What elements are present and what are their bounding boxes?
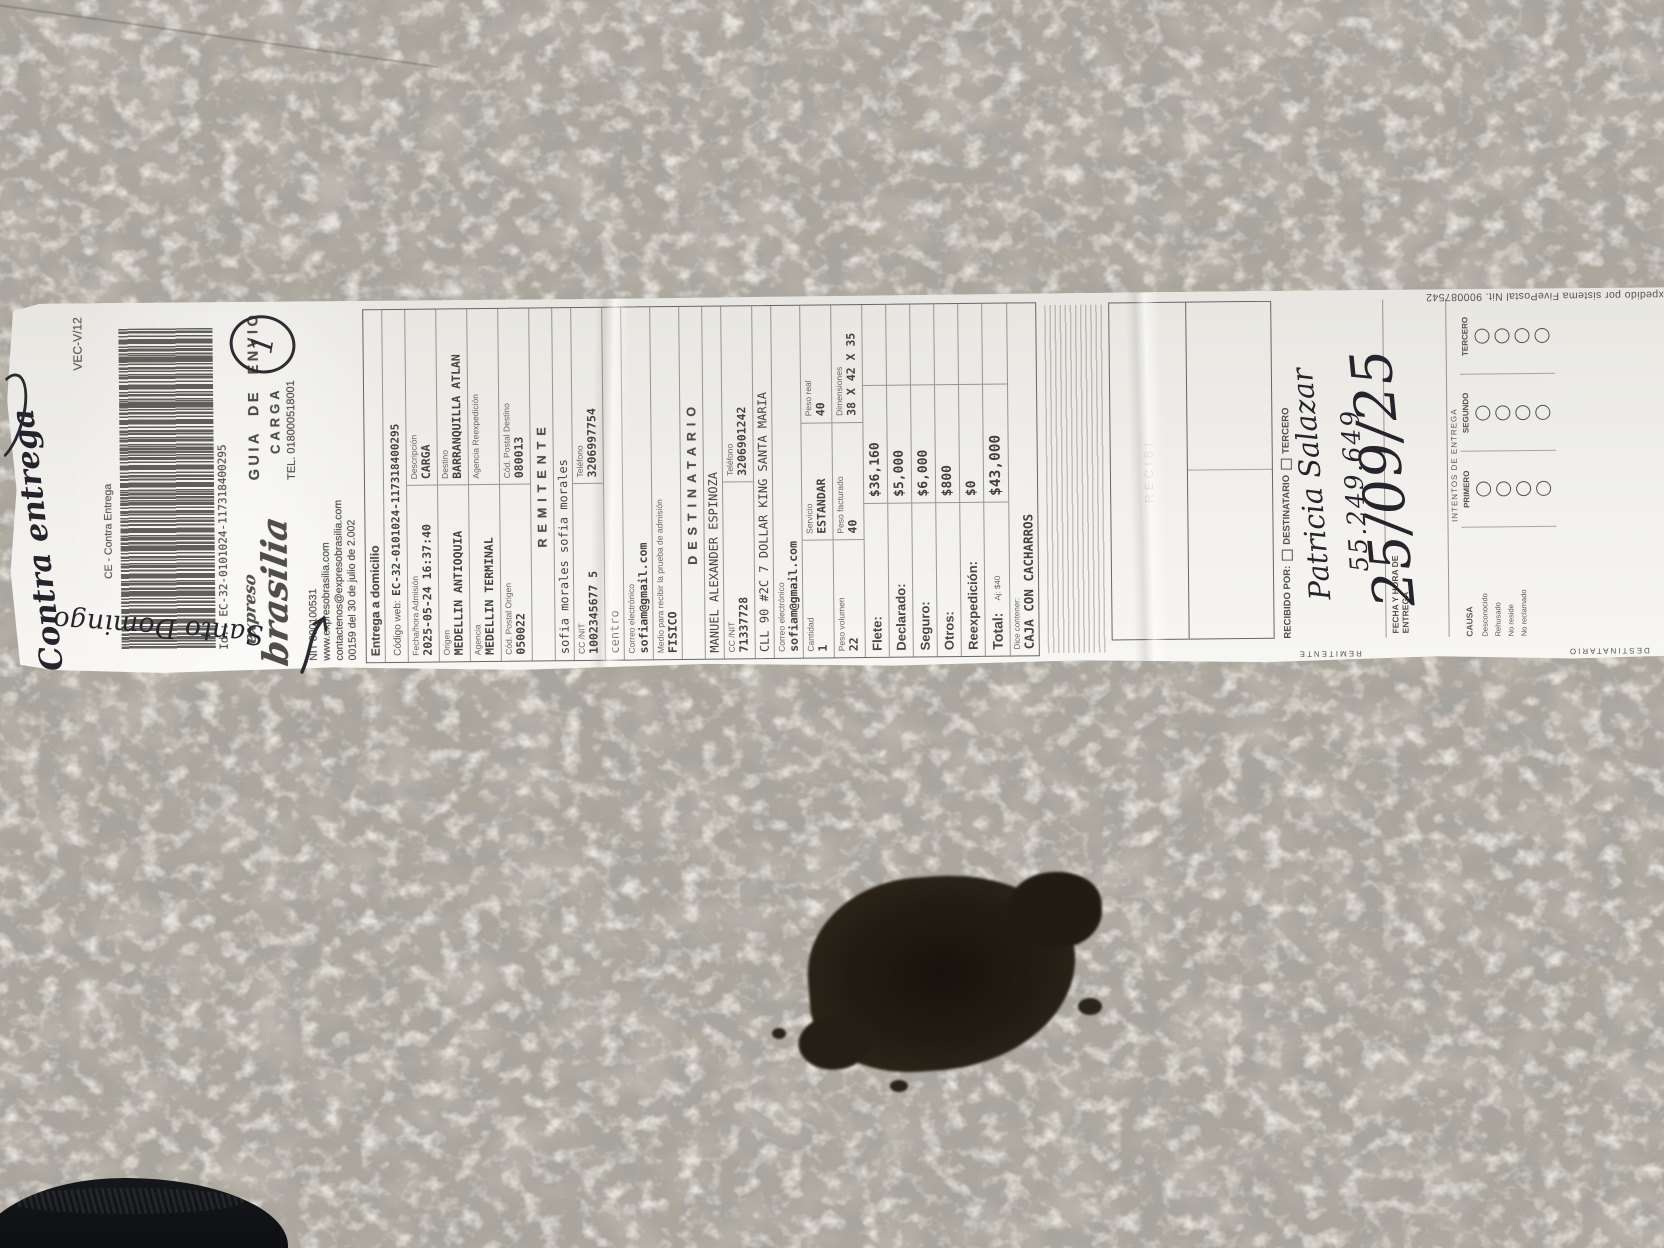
attempt-circle [1475,405,1490,420]
attempt-circle [1514,328,1529,343]
charge-spacer [886,305,910,386]
causa-item: Desconocido [1480,532,1490,637]
destinatario-cc-tel-row: CC /NIT 71337728 Teléfono 3206901242 [720,306,755,658]
destinatario-cc-cell: CC /NIT 71337728 [723,483,755,659]
field-value: 40 [844,429,859,534]
attempt-circle [1496,481,1511,496]
field-value: sofiam@gmail.com [783,312,801,652]
agencia-reexpedicion-cell: Agencia Reexpedición [467,309,499,486]
field-label: Agencia Reexpedición [469,315,481,479]
field-value: CAJA CON CACHARROS [1019,309,1037,649]
field-value: ESTANDAR [813,429,828,534]
charge-value: $800 [935,385,959,504]
waybill-table: Entrega a domicilio Código web: EC-32-01… [362,302,1040,663]
fecha-descripcion-row: Fecha/hora Admisión 2025-05-24 16:37:40 … [404,310,439,662]
charge-spacer [958,304,982,385]
reexpedicion-row: Reexpedición: $0 [957,304,985,656]
attempt-circle [1495,405,1510,420]
attempt-circle [1494,328,1509,343]
field-value: 050022 [512,491,528,655]
codigo-web-label: Código web: [392,600,404,656]
charge-label: Declarado: [888,504,913,657]
dimensiones-cell: Dimensiones 38 X 42 X 35 [831,305,862,423]
intento-header: SEGUNDO [1461,375,1471,450]
charge-label: Flete: [864,504,889,657]
causa-item: No reclamado [1519,531,1529,636]
origen-cell: Origen MEDELLIN ANTIOQUIA [438,486,470,662]
paquete-row-2: Peso volumen 22 Peso facturado 40 Dimens… [830,305,865,657]
peso-facturado-cell: Peso facturado 40 [832,423,863,541]
origen-destino-row: Origen MEDELLIN ANTIOQUIA Destino BARRAN… [435,309,470,661]
otros-row: Otros: $800 [933,304,961,656]
total-adjustment: Aj: $40 [993,576,1002,601]
peso-volumen-cell: Peso volumen 22 [834,540,865,657]
recibi-box: RECIBI [1108,302,1190,641]
delivery-attempts: INTENTOS DE ENTREGA CAUSA Desconocido Re… [1445,298,1558,637]
servicio-cell: Servicio ESTANDAR [801,423,832,541]
charge-value: $6,000 [911,385,935,504]
charge-spacer [910,304,934,385]
charge-label: Otros: [936,503,961,656]
cp-destino-cell: Cód. Postal Destino 080013 [498,309,530,486]
destino-cell: Destino BARRANQUILLA ATLAN [436,309,468,486]
field-value: MEDELLIN TERMINAL [481,491,497,655]
photo-scene: Contra entrega VEC-V/12 CE - Contra Entr… [0,0,1664,1248]
checkbox-tercero [1281,459,1292,470]
system-edge-note: expedido por sistema FivePostal Nit. 900… [1218,289,1664,306]
remitente-cc-cell: CC /NIT 1002345677 5 [573,484,605,660]
remitente-correo-row: Correo electrónico sofiam@gmail.com [620,307,653,659]
charge-spacer [982,304,1007,385]
flete-row: Flete: $36,160 [861,305,889,657]
agencia-cell: Agencia MEDELLIN TERMINAL [469,485,501,661]
remitente-medio-row: Medio para recibir la prueba de admisión… [649,307,682,659]
company-resolution: 00159 del 30 de julio de 2.002 [343,300,360,660]
recibido-por-row: RECIBIDO POR: DESTINATARIO TERCERO [1279,301,1294,639]
field-value: 71337728 [735,489,751,653]
legal-fine-print [1044,305,1106,654]
field-value: 1002345677 5 [585,490,601,654]
attempt-circle [1474,329,1489,344]
declarado-row: Declarado: $5,000 [885,305,913,657]
barcode-id: Id.: EC-32-0101024-117318400295 [214,302,231,650]
intentos-label: INTENTOS DE ENTREGA [1448,299,1459,522]
codigo-postal-row: Cód. Postal Origen 050022 Cód. Postal De… [497,309,532,661]
intento-primero-column: PRIMERO [1461,451,1557,528]
barcode [118,328,215,649]
field-value: sofiam@gmail.com [633,313,651,653]
checkbox-destinatario [1282,550,1293,561]
field-value: 3206997754 [583,314,599,478]
total-value: $43,000 [983,384,1008,503]
codigo-web-value: EC-32-0101024-117318400295 [388,424,403,596]
attempt-circle [1536,481,1551,496]
remitente-cc-tel-row: CC /NIT 1002345677 5 Teléfono 3206997754 [570,308,605,660]
total-label-cell: Total: Aj: $40 [984,503,1010,656]
checkbox-destinatario-label: DESTINATARIO [1281,475,1293,545]
attempt-circle [1535,404,1550,419]
field-value: 3206901242 [733,312,749,476]
charge-value: $5,000 [887,385,911,504]
recibido-por-label: RECIBIDO POR: [1282,566,1294,639]
recibi-watermark: RECIBI [1142,439,1157,503]
charge-label: Reexpedición: [960,503,985,656]
remitente-stub-tab: REMITENTE [1202,649,1362,660]
stain-speck [890,1080,908,1092]
cp-origen-cell: Cód. Postal Origen 050022 [500,485,532,661]
descripcion-cell: Descripción CARGA [405,310,437,487]
remitente-tel-cell: Teléfono 3206997754 [571,308,603,485]
intento-segundo-column: SEGUNDO [1460,374,1556,451]
destinatario-correo-row: Correo electrónico sofiam@gmail.com [770,306,803,658]
field-value: MEDELLIN ANTIOQUIA [450,492,466,656]
charge-value: $36,160 [863,385,887,504]
field-value: 38 X 42 X 35 [843,311,858,416]
brand-row: expreso brasilia GUIA DE ENVIO CARGA TEL… [237,309,300,666]
attempt-circle [1516,481,1531,496]
attempt-circle [1534,328,1549,343]
intento-header: PRIMERO [1462,452,1472,527]
fecha-admision-cell: Fecha/hora Admisión 2025-05-24 16:37:40 [407,486,439,662]
field-value: BARRANQUILLA ATLAN [448,315,464,479]
intento-tercero-column: TERCERO [1459,298,1555,375]
intento-header: TERCERO [1460,299,1470,374]
contenido-row: Dice contener: CAJA CON CACHARROS [1006,303,1039,655]
field-value: 22 [846,546,861,651]
paquete-row-1: Cantidad 1 Servicio ESTANDAR Peso real 4… [799,305,834,657]
seguro-row: Seguro: $6,000 [909,304,937,656]
destinatario-tel-cell: Teléfono 3206901242 [721,306,753,483]
delivery-date-row: FECHA Y HORA DE ENTREGA 25/09/25 [1382,299,1445,638]
field-value: CARGA [417,316,433,480]
field-value: 080013 [510,315,526,479]
charge-spacer [862,305,886,386]
stain-speck [1078,998,1102,1015]
charge-label: Seguro: [912,504,937,657]
charge-spacer [934,304,958,385]
peso-real-cell: Peso real 40 [800,305,831,423]
agencia-row: Agencia MEDELLIN TERMINAL Agencia Reexpe… [466,309,501,661]
pen-mark [296,610,340,676]
causa-item: Rehusado [1493,532,1503,637]
company-info: NIT 890100531 www.expresobrasilia.com co… [304,300,360,661]
charge-value: $0 [959,384,983,503]
total-label: Total: [989,612,1005,649]
cantidad-cell: Cantidad 1 [803,541,834,658]
attempt-circle [1476,482,1491,497]
field-value: 40 [812,311,827,416]
destinatario-stub-tab: DESTINATARIO [1410,646,1650,658]
signature-column [1188,470,1274,638]
total-row: Total: Aj: $40 $43,000 [981,304,1010,656]
causa-column: CAUSA Desconocido Rehusado No reside No … [1462,527,1558,637]
field-value: 2025-05-24 16:37:40 [419,492,435,656]
signature-columns [1186,301,1275,640]
service-type-label: CE - Contra Entrega [100,303,115,579]
field-value: 1 [815,547,830,652]
causa-item: No reside [1506,531,1516,636]
intentos-grid: CAUSA Desconocido Rehusado No reside No … [1459,298,1558,637]
stain-speck [772,1028,786,1039]
causa-label: CAUSA [1464,532,1475,637]
signature-column [1186,302,1272,471]
attempt-circle [1515,405,1530,420]
